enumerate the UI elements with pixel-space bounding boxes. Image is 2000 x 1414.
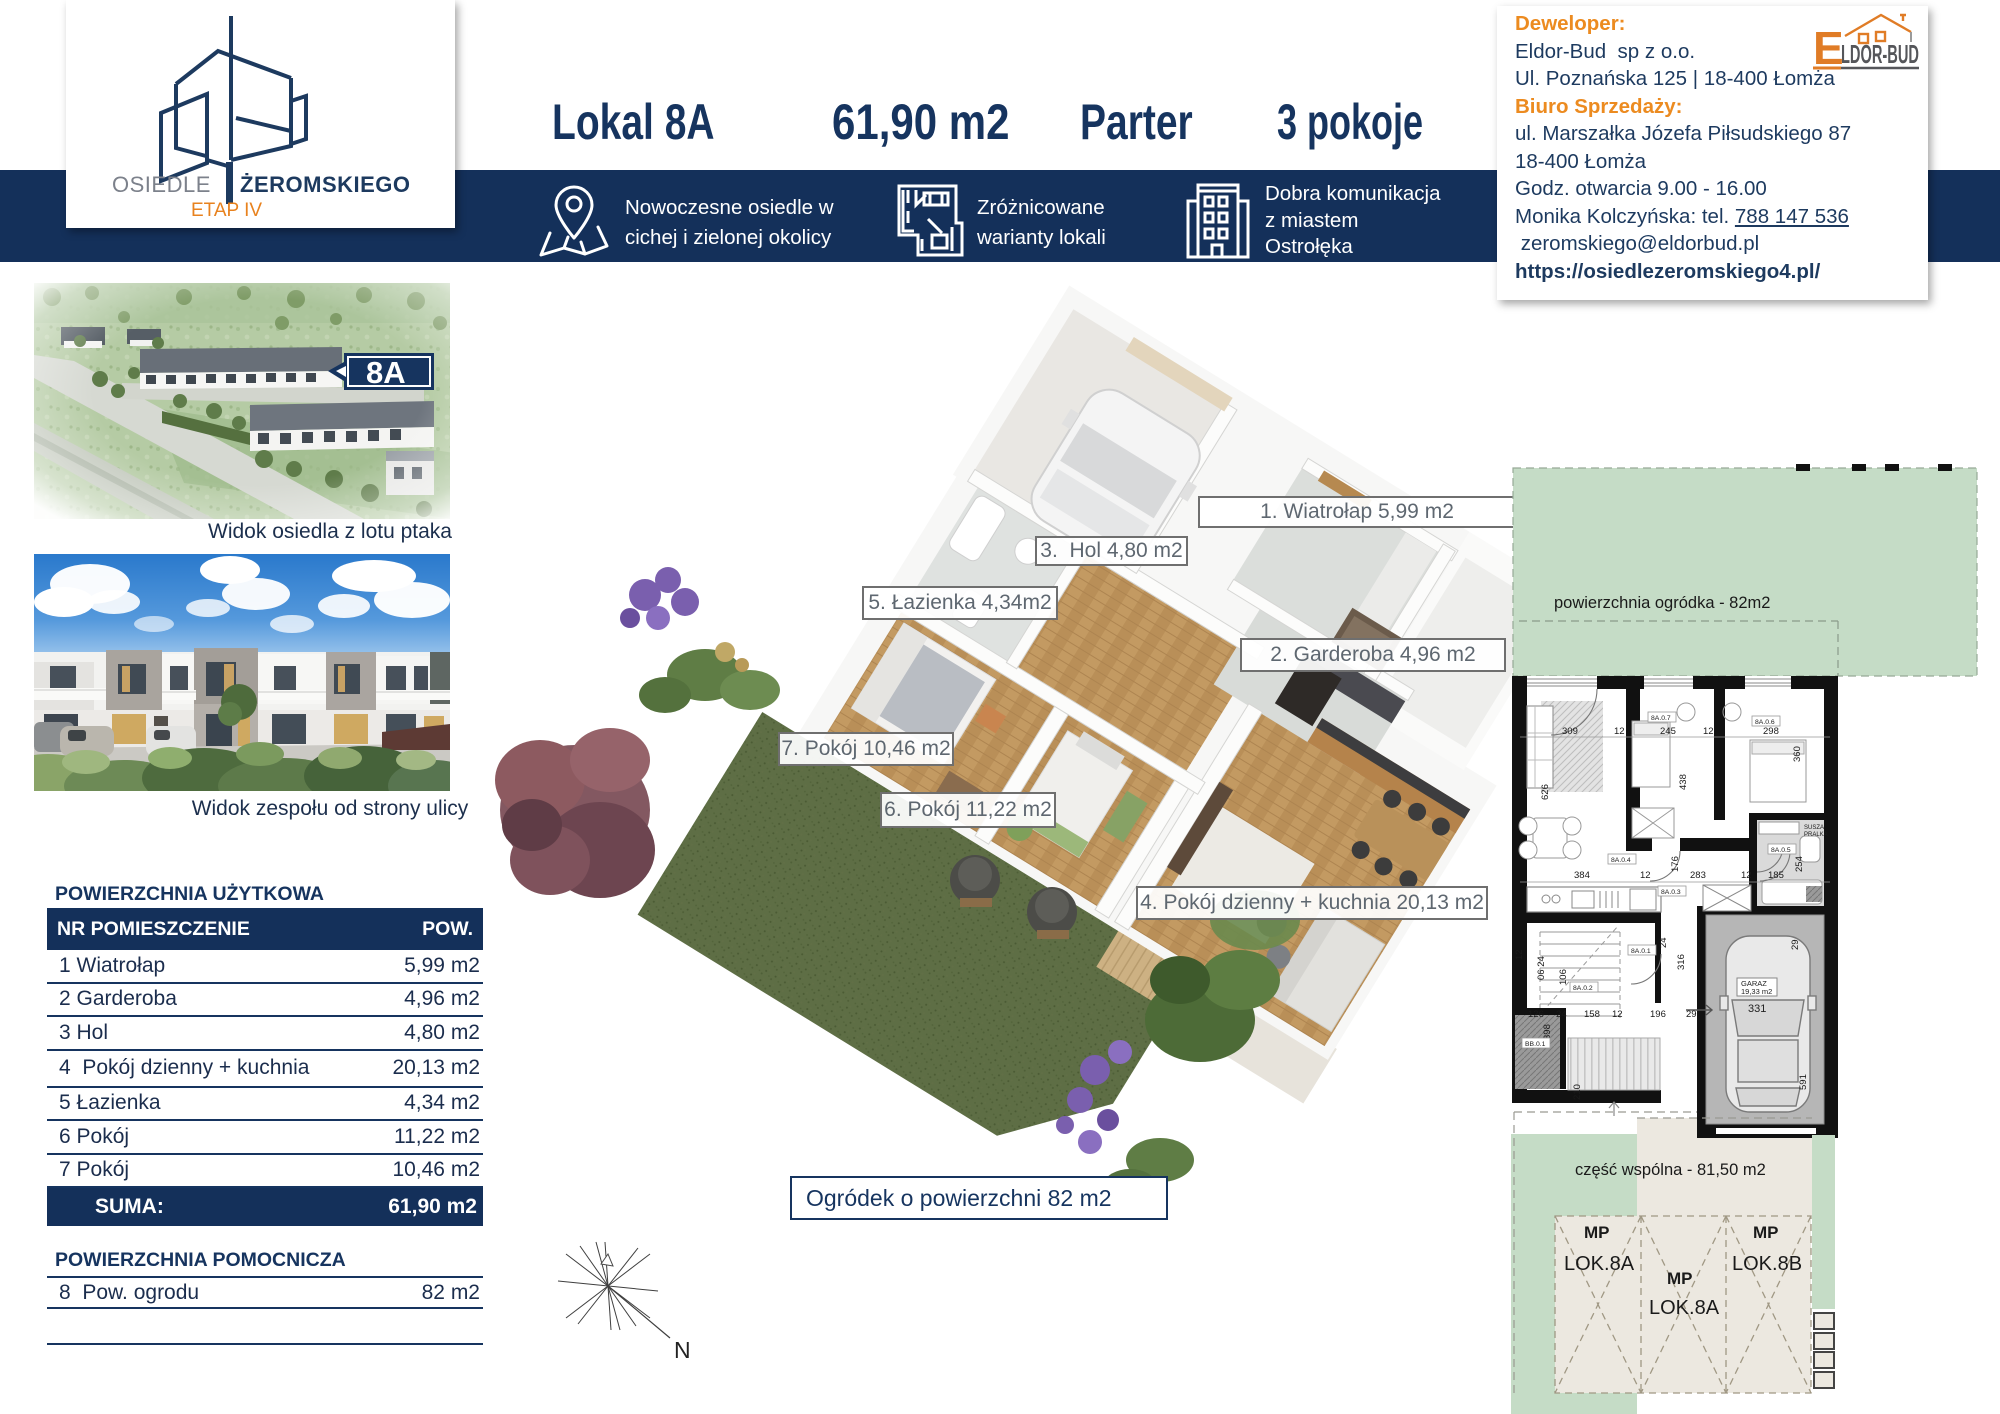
svg-text:12: 12 [1703, 726, 1714, 737]
svg-text:158: 158 [1584, 1009, 1600, 1020]
svg-text:N: N [674, 1337, 691, 1363]
svg-text:LDOR-BUD: LDOR-BUD [1841, 39, 1919, 69]
svg-text:BB.0.1: BB.0.1 [1525, 1041, 1546, 1048]
svg-text:24: 24 [1556, 1009, 1567, 1020]
svg-text:126: 126 [1528, 1009, 1544, 1020]
svg-text:8A.0.2: 8A.0.2 [1573, 985, 1593, 992]
svg-text:MP: MP [1753, 1223, 1779, 1242]
svg-text:316: 316 [1676, 954, 1687, 970]
svg-text:8A: 8A [366, 355, 406, 390]
svg-text:245: 245 [1660, 726, 1676, 737]
svg-text:196: 196 [1650, 1009, 1666, 1020]
svg-text:8A.0.5: 8A.0.5 [1771, 847, 1791, 854]
svg-text:ŻEROMSKIEGO: ŻEROMSKIEGO [240, 172, 411, 197]
svg-text:309: 309 [1562, 726, 1578, 737]
svg-text:19,33 m2: 19,33 m2 [1741, 987, 1772, 996]
svg-text:8A.0.3: 8A.0.3 [1661, 889, 1681, 896]
svg-text:626: 626 [1540, 784, 1551, 800]
svg-text:ETAP IV: ETAP IV [191, 200, 262, 221]
svg-text:298: 298 [1763, 726, 1779, 737]
svg-text:12: 12 [1614, 726, 1625, 737]
svg-text:część wspólna - 81,50 m2: część wspólna - 81,50 m2 [1575, 1161, 1766, 1179]
svg-text:8A.0.6: 8A.0.6 [1755, 719, 1775, 726]
svg-text:254: 254 [1794, 856, 1805, 872]
svg-text:8A.0.7: 8A.0.7 [1651, 715, 1671, 722]
svg-text:438: 438 [1678, 774, 1689, 790]
svg-text:E: E [1813, 22, 1844, 72]
svg-text:OSIEDLE: OSIEDLE [112, 172, 211, 197]
svg-text:MP: MP [1667, 1269, 1693, 1288]
svg-text:PRALKA: PRALKA [1804, 832, 1828, 838]
svg-text:8A.0.4: 8A.0.4 [1611, 857, 1631, 864]
svg-text:331: 331 [1748, 1003, 1766, 1015]
svg-text:29: 29 [1790, 939, 1801, 950]
svg-text:29: 29 [1686, 1009, 1697, 1020]
svg-text:176: 176 [1670, 856, 1681, 872]
svg-text:24: 24 [1658, 937, 1669, 948]
svg-text:12: 12 [1741, 870, 1752, 881]
svg-text:LOK.8A: LOK.8A [1564, 1253, 1635, 1275]
svg-text:210: 210 [1572, 1084, 1583, 1100]
svg-text:185: 185 [1768, 870, 1784, 881]
svg-text:06 24: 06 24 [1536, 956, 1547, 980]
svg-text:12: 12 [1612, 1009, 1623, 1020]
svg-text:12: 12 [1514, 949, 1525, 960]
svg-text:MP: MP [1584, 1223, 1610, 1242]
svg-text:384: 384 [1574, 870, 1590, 881]
svg-text:powierzchnia ogródka - 82m2: powierzchnia ogródka - 82m2 [1554, 594, 1770, 612]
svg-text:LOK.8A: LOK.8A [1649, 1297, 1720, 1319]
svg-text:8A.0.1: 8A.0.1 [1631, 948, 1651, 955]
svg-text:12: 12 [1640, 870, 1651, 881]
svg-text:360: 360 [1792, 746, 1803, 762]
svg-text:SUSZA: SUSZA [1804, 825, 1824, 831]
svg-text:LOK.8B: LOK.8B [1732, 1253, 1802, 1275]
svg-text:283: 283 [1690, 870, 1706, 881]
svg-text:591: 591 [1798, 1074, 1809, 1090]
svg-text:106: 106 [1558, 969, 1569, 985]
